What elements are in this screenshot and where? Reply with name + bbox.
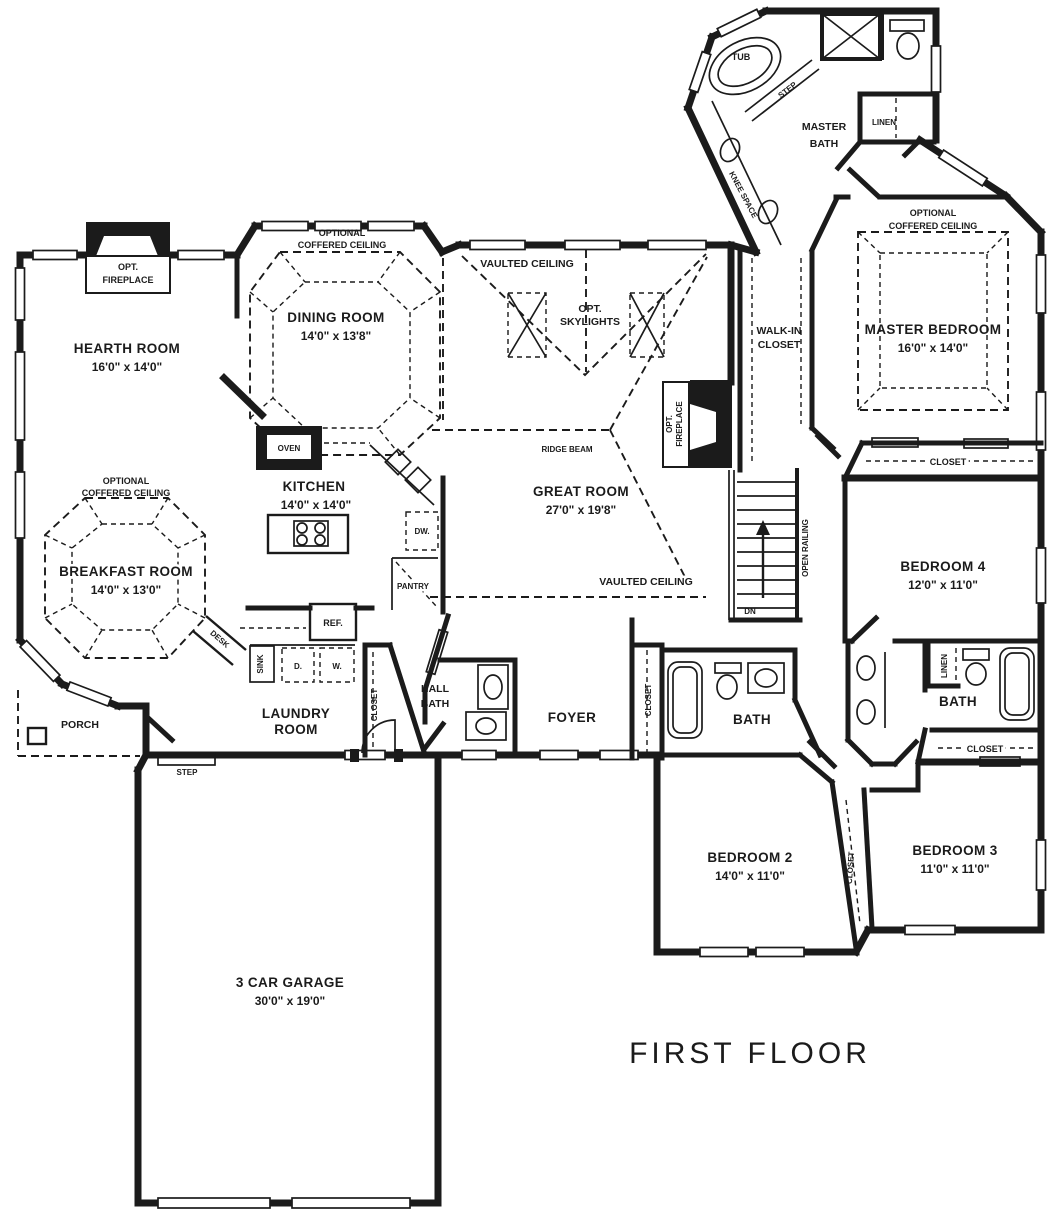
bath-right: LINEN BATH CLOSET	[848, 643, 1041, 766]
ref-label: REF.	[323, 618, 343, 628]
dishwasher: DW.	[406, 512, 438, 550]
kitchen-island	[268, 515, 348, 553]
dining-optional-label: OPTIONAL	[319, 228, 366, 238]
oven-label: OVEN	[278, 444, 301, 453]
dryer-label: D.	[294, 662, 302, 671]
page-title: FIRST FLOOR	[629, 1037, 871, 1070]
sink-fixture-middle-bath	[755, 669, 777, 687]
floor-plan-svg: OPT. FIREPLACE HEARTH ROOM 16'0" x 14'0"…	[0, 0, 1064, 1213]
dining-room: OPTIONAL COFFERED CEILING DINING ROOM 14…	[250, 228, 443, 455]
opt-fireplace-label-2a: OPT.	[665, 415, 674, 433]
windows	[16, 9, 1046, 1208]
master-bath-label-1: MASTER	[802, 121, 847, 133]
hall-bath: HALL BATH	[421, 616, 515, 755]
porch-column	[28, 728, 46, 744]
master-bath-label-2: BATH	[810, 138, 838, 150]
toilet-fixture-right-bath	[966, 663, 986, 685]
staircase: OPEN RAILING DN	[729, 470, 810, 620]
dining-room-label: DINING ROOM	[287, 310, 384, 325]
pantry: PANTRY	[392, 478, 443, 612]
master-bedroom-label: MASTER BEDROOM	[865, 322, 1002, 337]
skylight-left	[508, 293, 546, 357]
opt-fireplace-label-1a: OPT.	[118, 262, 138, 272]
foyer-closet-label: CLOSET	[644, 684, 653, 717]
dw-label: DW.	[414, 527, 429, 536]
master-bedroom: OPTIONAL COFFERED CEILING MASTER BEDROOM…	[836, 170, 1041, 478]
master-closet-label: CLOSET	[930, 457, 967, 467]
hearth-fireplace: OPT. FIREPLACE	[86, 222, 170, 293]
breakfast-room-dims: 14'0" x 13'0"	[91, 583, 161, 597]
opt-fireplace-label-2b: FIREPLACE	[675, 401, 684, 447]
opt-fireplace-label-1b: FIREPLACE	[102, 275, 153, 285]
bath-middle-label: BATH	[733, 712, 771, 727]
dining-room-dims: 14'0" x 13'8"	[301, 329, 371, 343]
mbr-coffered-label: COFFERED CEILING	[889, 221, 978, 231]
kitchen-dims: 14'0" x 14'0"	[281, 498, 351, 512]
skylights-label-a: OPT.	[578, 303, 601, 315]
porch-label: PORCH	[61, 719, 99, 731]
breakfast-room-label: BREAKFAST ROOM	[59, 564, 193, 579]
laundry-sink: SINK	[250, 646, 274, 682]
bedroom2-3-closet: CLOSET	[832, 782, 872, 948]
breakfast-room: OPTIONAL COFFERED CEILING BREAKFAST ROOM…	[45, 476, 205, 658]
dn-label: DN	[744, 607, 756, 616]
sink-fixture-hall-bath	[476, 718, 496, 734]
tub-step-label: STEP	[776, 80, 799, 100]
linen-label-master: LINEN	[872, 118, 896, 127]
hall-bath-label-1: HALL	[421, 683, 450, 695]
bedroom3-label: BEDROOM 3	[912, 843, 997, 858]
walk-in-label-1: WALK-IN	[757, 325, 802, 337]
laundry-label-1: LAUNDRY	[262, 706, 330, 721]
bedroom4-label: BEDROOM 4	[900, 559, 985, 574]
hearth-room-dims: 16'0" x 14'0"	[92, 360, 162, 374]
bkf-optional-label: OPTIONAL	[103, 476, 150, 486]
tub-label: TUB	[732, 52, 751, 62]
oven-nook: OVEN	[256, 426, 322, 470]
walk-in-closet: WALK-IN CLOSET	[740, 200, 838, 470]
washer-label: W.	[332, 662, 341, 671]
step-label-porch: STEP	[177, 768, 199, 777]
foyer-closet: CLOSET	[632, 620, 662, 758]
bedroom-3: BEDROOM 3 11'0" x 11'0"	[872, 762, 998, 876]
pantry-label: PANTRY	[397, 582, 430, 591]
floor-plan-page: OPT. FIREPLACE HEARTH ROOM 16'0" x 14'0"…	[0, 0, 1064, 1213]
great-room-dims: 27'0" x 19'8"	[546, 503, 616, 517]
linen-label-bath: LINEN	[940, 654, 949, 678]
bath-middle: CLOSET BATH	[632, 620, 834, 782]
great-room-fireplace: OPT. FIREPLACE	[663, 380, 732, 468]
great-room-label: GREAT ROOM	[533, 484, 629, 499]
bedroom2-dims: 14'0" x 11'0"	[715, 869, 785, 883]
double-vanity-alcove	[848, 643, 916, 764]
toilet-fixture-hall-bath	[484, 675, 502, 699]
vaulted-ceiling-label-bottom: VAULTED CEILING	[599, 576, 693, 588]
hall-bath-label-2: BATH	[421, 698, 449, 710]
bath-closet-label: CLOSET	[967, 744, 1004, 754]
bedroom-2: BEDROOM 2 14'0" x 11'0"	[707, 850, 792, 883]
bedroom2-label: BEDROOM 2	[707, 850, 792, 865]
linen-closet-master: LINEN	[860, 94, 934, 142]
mbr-optional-label: OPTIONAL	[910, 208, 957, 218]
laundry-label-2: ROOM	[274, 722, 318, 737]
sink-label: SINK	[256, 654, 265, 673]
kitchen: OVEN KITCHEN 14'0" x 14'0" DW. PANTRY	[256, 426, 443, 612]
vaulted-ceiling-label-top: VAULTED CEILING	[480, 258, 574, 270]
hearth-room-label: HEARTH ROOM	[74, 341, 180, 356]
exterior-walls	[20, 11, 1041, 1203]
foyer-label: FOYER	[548, 710, 597, 725]
refrigerator: REF.	[248, 604, 372, 640]
garage-label: 3 CAR GARAGE	[236, 975, 344, 990]
bkf-coffered-label: COFFERED CEILING	[82, 488, 171, 498]
open-railing-label: OPEN RAILING	[801, 519, 810, 577]
toilet-fixture-middle-bath	[717, 675, 737, 699]
bedroom-closet-label: CLOSET	[845, 851, 856, 884]
dining-coffered-label: COFFERED CEILING	[298, 240, 387, 250]
bedroom4-dims: 12'0" x 11'0"	[908, 578, 978, 592]
laundry-closet-label: CLOSET	[370, 689, 379, 722]
walk-in-label-2: CLOSET	[758, 339, 801, 351]
kitchen-label: KITCHEN	[283, 479, 346, 494]
foyer: FOYER	[548, 710, 597, 725]
bedroom-4: BEDROOM 4 12'0" x 11'0"	[845, 478, 1041, 641]
bath-right-label: BATH	[939, 694, 977, 709]
laundry-room: DESK REF. SINK D. W. LAUNDRY ROOM CLOSET	[146, 604, 425, 755]
shower-fixture	[822, 14, 880, 59]
washer: W.	[320, 648, 354, 682]
garage-dims: 30'0" x 19'0"	[255, 994, 325, 1008]
dryer: D.	[282, 648, 314, 682]
linen-closet-bath: LINEN	[928, 643, 958, 686]
master-closet: CLOSET	[845, 438, 1041, 478]
ridge-beam-label: RIDGE BEAM	[541, 445, 592, 454]
toilet-room	[882, 13, 924, 59]
garage: 3 CAR GARAGE 30'0" x 19'0"	[236, 720, 403, 1008]
bedroom3-dims: 11'0" x 11'0"	[920, 862, 989, 876]
master-bedroom-dims: 16'0" x 14'0"	[898, 341, 968, 355]
skylights-label-b: SKYLIGHTS	[560, 316, 620, 328]
